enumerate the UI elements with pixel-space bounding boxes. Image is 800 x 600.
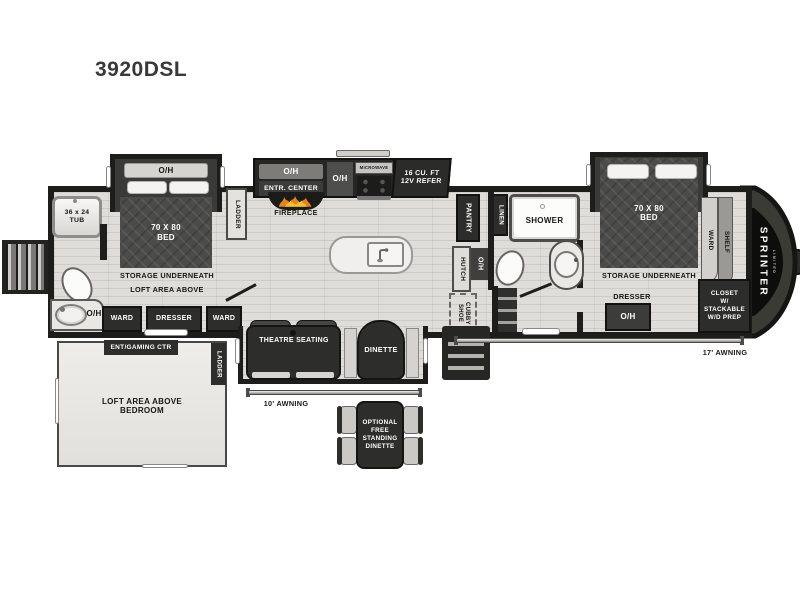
loft-window — [142, 464, 188, 468]
shower-head — [540, 204, 545, 209]
bedroom-steps — [498, 288, 517, 332]
dinette-chair — [340, 437, 357, 465]
front-bedroom-overhead-cabinet: O/H — [124, 163, 208, 178]
rear-awning-label: 10' AWNING — [244, 399, 328, 410]
dinette-bench — [344, 328, 357, 378]
island-faucet-icon — [376, 247, 392, 263]
window — [586, 164, 591, 186]
pillow — [127, 181, 167, 194]
pillow — [169, 181, 209, 194]
loft-ladder: LADDER — [211, 343, 226, 385]
washer-dryer-closet: CLOSET W/ STACKABLE W/D PREP — [698, 279, 751, 333]
dinette-label: DINETTE — [357, 344, 405, 356]
front-awning-label: 17' AWNING — [690, 348, 760, 359]
front-bedroom-bed: 70 X 80 BED — [120, 197, 212, 268]
window — [706, 164, 711, 186]
tv-shelf — [336, 150, 390, 157]
refrigerator: 16 CU. FT 12V REFER — [391, 158, 451, 198]
hall-overhead: O/H — [471, 248, 489, 280]
optional-dinette-table: OPTIONAL FREE STANDING DINETTE — [356, 401, 404, 469]
window — [106, 166, 111, 188]
fireplace-flame-icon — [278, 194, 314, 207]
dinette-bench — [406, 328, 419, 378]
shower-label: SHOWER — [509, 215, 580, 227]
page-title: 3920DSL — [95, 58, 187, 82]
linen-closet: LINEN — [492, 194, 508, 236]
hutch: HUTCH — [452, 246, 471, 292]
wardrobe: WARD — [206, 306, 242, 332]
window — [220, 166, 225, 188]
front-awning — [456, 338, 742, 343]
brand-name: SPRINTER — [757, 227, 768, 298]
loft-window — [55, 378, 59, 424]
front-storage-label: STORAGE UNDERNEATH — [104, 271, 230, 282]
theatre-label: THEATRE SEATING — [248, 335, 340, 347]
master-dresser-overhead: O/H — [605, 303, 651, 331]
chair-back — [418, 437, 423, 465]
brand-sub: LIMITED — [772, 250, 776, 275]
front-bedroom-ladder: LADDER — [226, 188, 247, 240]
rear-awning — [248, 390, 420, 395]
wall — [488, 192, 494, 290]
loft-ent-gaming-center: ENT/GAMING CTR — [104, 340, 178, 355]
rear-sink-faucet — [60, 307, 65, 312]
master-storage-label: STORAGE UNDERNEATH — [594, 271, 704, 282]
wardrobe: WARD — [102, 306, 142, 332]
window — [235, 338, 240, 364]
kitchen-overhead: O/H — [327, 162, 353, 196]
chair-back — [418, 406, 423, 434]
chair-back — [337, 406, 342, 434]
window — [522, 328, 560, 335]
pantry: PANTRY — [456, 194, 480, 242]
theatre-footrest — [252, 372, 290, 378]
floorplan: 3920DSL SPRINTER LIMITED O/H 70 X 80 BED… — [0, 0, 800, 600]
bath-sink — [554, 251, 579, 278]
window — [144, 329, 188, 336]
wall — [577, 312, 583, 338]
tub-faucet — [73, 199, 77, 203]
rear-entry-steps — [2, 240, 48, 294]
pillow — [607, 164, 649, 179]
wall — [100, 224, 107, 260]
pillow — [655, 164, 697, 179]
range-cooktop — [357, 176, 391, 200]
fireplace-label: FIREPLACE — [258, 208, 334, 219]
theatre-footrest — [296, 372, 334, 378]
master-shelf: SHELF — [718, 197, 733, 287]
entertainment-overhead: O/H — [259, 164, 323, 179]
master-dresser-label: DRESSER — [602, 292, 662, 303]
bath-faucet — [574, 258, 578, 262]
front-loft-label: LOFT AREA ABOVE — [108, 285, 226, 296]
microwave: MICROWAVE — [355, 162, 393, 174]
master-wardrobe: WARD — [701, 197, 718, 283]
dinette-chair — [340, 406, 357, 434]
bathtub: 36 x 24 TUB — [52, 196, 102, 238]
loft-area-label: LOFT AREA ABOVE BEDROOM — [77, 394, 207, 418]
chair-back — [337, 437, 342, 465]
window — [423, 338, 428, 364]
